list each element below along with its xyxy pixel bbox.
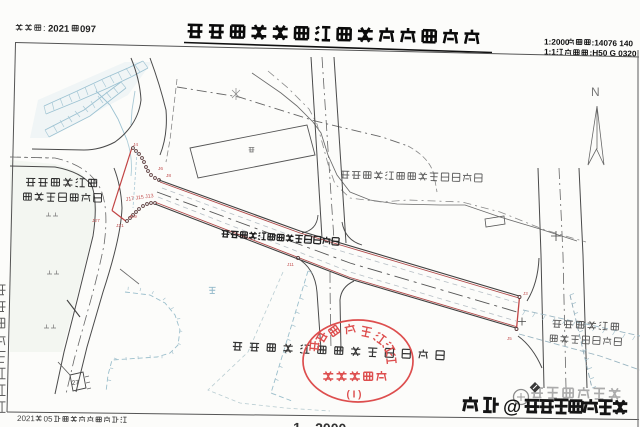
svg-text:097: 097: [80, 24, 96, 35]
svg-text:J8: J8: [166, 173, 171, 179]
svg-text:1:2000: 1:2000: [544, 38, 570, 48]
svg-text::: :: [43, 23, 46, 33]
svg-text:27: 27: [71, 379, 79, 387]
svg-text:J5: J5: [507, 336, 512, 341]
svg-text:@: @: [503, 396, 521, 417]
svg-text:J21: J21: [116, 223, 124, 229]
svg-text:N: N: [591, 85, 600, 99]
svg-text:05: 05: [43, 415, 53, 424]
svg-text:2021: 2021: [48, 24, 70, 35]
svg-text:1: 1: [293, 420, 301, 427]
svg-text:—: —: [301, 420, 314, 427]
svg-text:J11: J11: [287, 262, 294, 267]
svg-text::14076 140: :14076 140: [591, 39, 633, 49]
svg-text:J19: J19: [129, 214, 137, 220]
svg-text:( I ): ( I ): [347, 390, 362, 401]
svg-text:J27: J27: [92, 218, 100, 224]
svg-text:J6: J6: [158, 166, 163, 172]
svg-text:2021: 2021: [17, 414, 35, 423]
svg-text:J3: J3: [523, 291, 528, 296]
svg-text:J4: J4: [133, 142, 138, 148]
svg-text:2000: 2000: [315, 420, 347, 427]
